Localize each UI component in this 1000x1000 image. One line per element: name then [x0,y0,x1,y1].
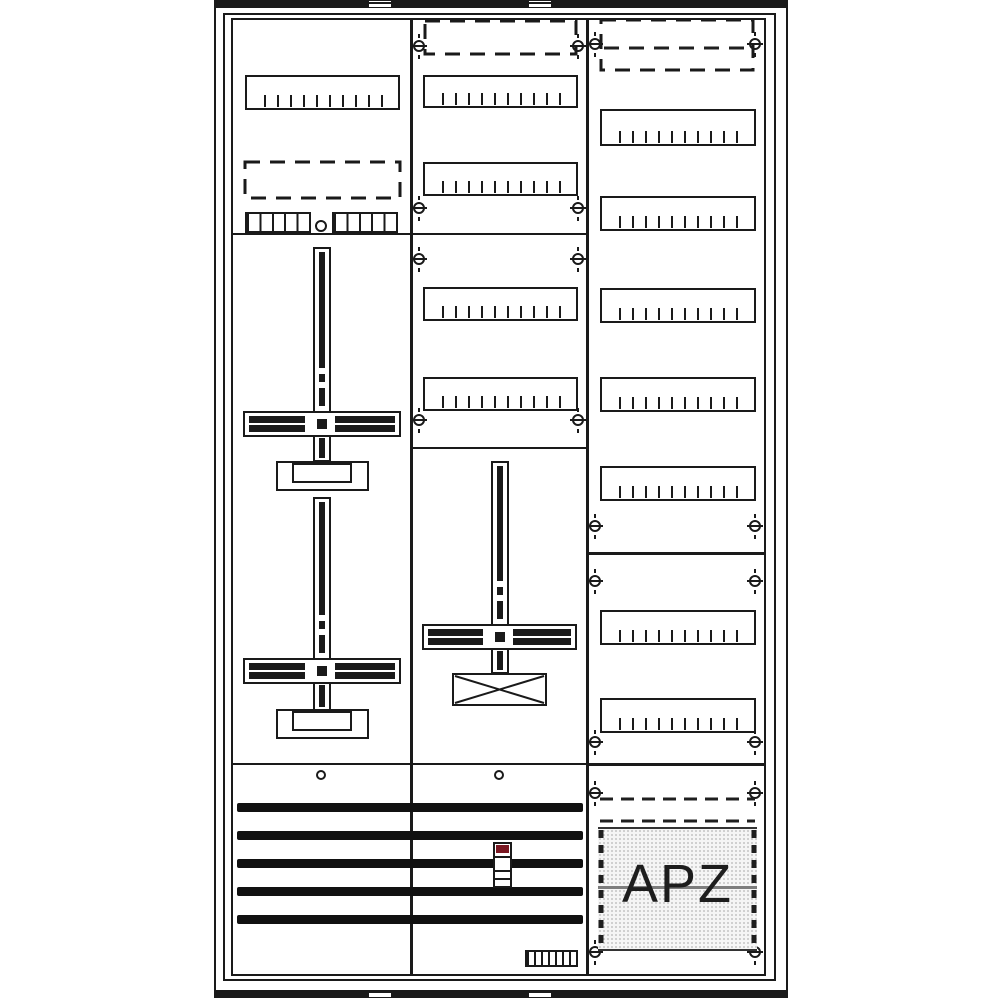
meter-cross-vdot [319,374,325,382]
screw-slot [587,580,603,582]
screw-mark [594,940,596,944]
meter-cross-hline [335,672,395,679]
screw-mark [754,730,756,734]
screw-mark [577,408,579,412]
din-rail-ticks [608,397,748,409]
din-rail-ticks [608,630,748,642]
din-rail-middle-rail-3 [423,287,578,321]
din-rail-ticks [431,93,570,105]
din-rail-middle-rail-4 [423,377,578,411]
mounting-hole [494,770,504,780]
screw-slot [587,43,603,45]
busbar [237,887,583,896]
screw-mark [577,268,579,272]
screw-slot [587,951,603,953]
meter-cross-hline [249,425,305,432]
screw-slot [570,45,586,47]
screw-mark [754,32,756,36]
screw-mark [754,590,756,594]
meter-cross-vdot [319,621,325,629]
screw-mark [577,217,579,221]
screw-mark [418,408,420,412]
meter-cross-hline [249,672,305,679]
screw-mark [577,247,579,251]
din-rail-middle-rail-2 [423,162,578,196]
meter-cross-vseg [319,635,325,653]
screw-mark [594,961,596,965]
din-rail-ticks [608,131,748,143]
screw-mark [594,751,596,755]
din-rail-right-rail-2 [600,196,756,231]
screw-mark [754,569,756,573]
screw-mark [594,32,596,36]
meter-cross-vseg [319,388,325,406]
screw-mark [594,730,596,734]
screw-mark [754,53,756,57]
screw-slot [747,792,763,794]
screw-slot [587,741,603,743]
screw-mark [754,514,756,518]
screw-mark [754,535,756,539]
mounting-hole [316,770,326,780]
section-divider-middle-sec-2 [413,447,586,449]
meter-cross-vseg [319,685,325,707]
meter-terminal-cover-inner [292,463,352,483]
meter-cross-hline [335,416,395,423]
screw-slot [747,580,763,582]
section-divider-middle-sec-1 [413,233,586,235]
screw-mark [577,55,579,59]
screw-slot [411,207,427,209]
screw-mark [418,217,420,221]
screw-mark [418,268,420,272]
meter-cross-vseg [319,438,325,458]
screw-mark [418,247,420,251]
din-rail-right-rail-6 [600,610,756,645]
meter-cross-hline [428,638,483,645]
meter-cross-vseg [497,601,503,619]
din-rail-right-rail-3 [600,288,756,323]
din-rail-right-rail-4 [600,377,756,412]
din-rail-ticks [253,95,392,107]
screw-slot [747,741,763,743]
meter-cross-vseg [497,651,503,670]
terminal-comb-left-comb-1 [245,212,311,233]
screw-mark [754,781,756,785]
screw-mark [754,751,756,755]
din-rail-right-rail-5 [600,466,756,501]
screw-mark [594,535,596,539]
screw-slot [747,951,763,953]
din-rail-ticks [608,718,748,730]
screw-mark [754,961,756,965]
meter-cross-vline [319,252,325,368]
screw-mark [594,590,596,594]
meter-cross-center [317,666,327,676]
screw-slot [570,419,586,421]
screw-mark [754,802,756,806]
din-rail-ticks [608,308,748,320]
meter-cross-hline [249,663,305,670]
screw-mark [594,53,596,57]
section-divider-left-sec-2 [233,763,410,765]
din-rail-ticks [431,396,570,408]
screw-mark [577,34,579,38]
meter-cross-vline [497,466,503,581]
terminal-comb-bottom-comb [525,950,578,967]
screw-slot [411,258,427,260]
screw-mark [418,55,420,59]
meter-cross-center [495,632,505,642]
screw-mark [594,802,596,806]
section-divider-right-sec-1 [589,552,764,555]
din-rail-middle-rail-1 [423,75,578,108]
screw-slot [570,258,586,260]
din-rail-left-rail-1 [245,75,400,110]
meter-cross-hline [428,629,483,636]
screw-slot [411,45,427,47]
screw-mark [594,569,596,573]
meter-cross-hline [249,416,305,423]
din-rail-right-rail-7 [600,698,756,733]
screw-mark [418,429,420,433]
meter-cabinet-diagram: APZ [0,0,1000,1000]
screw-slot [747,43,763,45]
meter-cross-hline [335,663,395,670]
fuse-line [495,878,510,880]
section-divider-middle-sec-3 [413,763,586,765]
din-rail-ticks [608,216,748,228]
screw-mark [418,34,420,38]
section-divider-left-sec-1 [233,233,410,235]
fuse-cap [496,845,509,853]
meter-cross-hline [335,425,395,432]
meter-cross-hline [513,629,571,636]
din-rail-right-rail-1 [600,109,756,146]
busbar [237,915,583,924]
busbar [237,803,583,812]
meter-cross-hline [513,638,571,645]
screw-slot [587,792,603,794]
meter-xbox-middle-meter [452,673,547,706]
screw-slot [570,207,586,209]
fuse-line [495,856,510,858]
din-rail-ticks [608,486,748,498]
meter-cross-vline [319,502,325,615]
screw-slot [587,525,603,527]
screw-mark [594,781,596,785]
screw-slot [411,419,427,421]
screw-mark [577,196,579,200]
terminal-comb-left-comb-2 [332,212,398,233]
screw-mark [418,196,420,200]
meter-terminal-cover-inner [292,711,352,731]
busbar [237,831,583,840]
fuse-line [495,870,510,872]
section-divider-right-sec-2 [589,763,764,766]
apz-label: APZ [598,852,757,916]
busbar [237,859,583,868]
mounting-hole [315,220,327,232]
meter-cross-center [317,419,327,429]
meter-cross-vdot [497,587,503,595]
screw-mark [594,514,596,518]
screw-slot [747,525,763,527]
screw-mark [577,429,579,433]
din-rail-ticks [431,181,570,193]
din-rail-ticks [431,306,570,318]
